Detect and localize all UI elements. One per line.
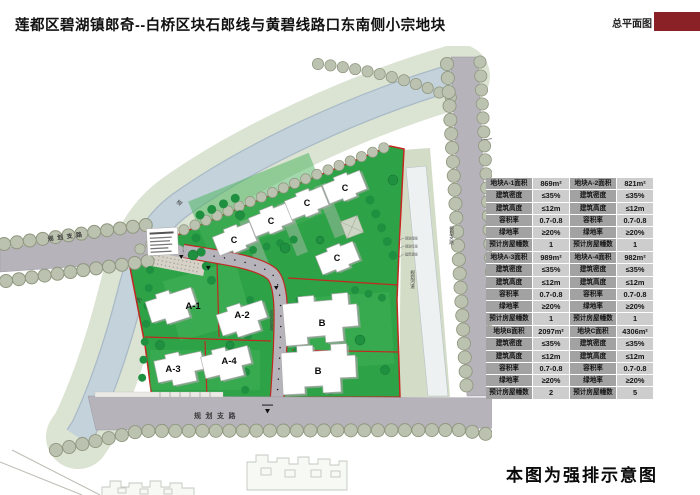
spec-row-label: 预计房屋幢数 [486,239,532,250]
spec-value: 5 [617,387,653,398]
setback-note-3: 建筑退线 [405,252,419,257]
spec-value: 1 [533,239,569,250]
spec-value: 0.7-0.8 [533,215,569,226]
site-plan-map: A-1 A-2 A-3 A-4 B B C C C C C 规划支路 规划支路 … [0,46,492,495]
spec-title: 地块A-2面积 [570,178,616,189]
page-title: 莲都区碧湖镇郎奇--白桥区块石郎线与黄碧线路口东南侧小宗地块 [15,14,446,35]
spec-row-label: 容积率 [570,289,616,300]
spec-value: ≥20% [617,375,653,386]
footprint-sketch-1 [102,481,194,495]
spec-row-label: 建筑密度 [486,338,532,349]
parcel-label-a4: A-4 [221,356,237,367]
spec-area: 989m² [533,252,569,263]
spec-value: ≤35% [533,338,569,349]
footprint-sketch-2 [247,455,347,490]
spec-row-label: 容积率 [486,363,532,374]
spec-title: 地块C面积 [570,326,616,337]
spec-value: ≤35% [617,264,653,275]
spec-value: ≤35% [617,338,653,349]
spec-row-label: 建筑高度 [486,351,532,362]
spec-row-label: 建筑高度 [486,277,532,288]
spec-value: 0.7-0.8 [533,363,569,374]
spec-row-label: 容积率 [570,363,616,374]
spec-row-label: 建筑密度 [570,338,616,349]
spec-value: ≤12m [617,203,653,214]
spec-title: 地块A-4面积 [570,252,616,263]
sidewalk [95,392,223,397]
spec-row-label: 容积率 [570,215,616,226]
parcel-label-c5: C [334,253,341,263]
parcel-label-c1: C [231,235,238,245]
spec-row-label: 建筑高度 [570,277,616,288]
spec-table-a1: 地块A-1面积 869m² 建筑密度 ≤35% 建筑高度 ≤12m 容积率 0.… [486,178,569,251]
sheet-type-label: 总平面图 [598,15,652,30]
parcel-label-b2: B [315,366,322,377]
spec-table-c: 地块C面积 4306m² 建筑密度 ≤35% 建筑高度 ≤12m 容积率 0.7… [570,326,653,399]
parcel-label-a3: A-3 [165,364,180,375]
spec-row-label: 容积率 [486,215,532,226]
spec-value: ≤12m [533,351,569,362]
spec-row-label: 绿地率 [486,227,532,238]
east-road-label: 规划支路 [449,225,455,246]
spec-row-label: 建筑高度 [486,203,532,214]
spec-row-label: 绿地率 [570,227,616,238]
spec-row-label: 绿地率 [486,375,532,386]
spec-table-a2: 地块A-2面积 821m² 建筑密度 ≤35% 建筑高度 ≤12m 容积率 0.… [570,178,653,251]
spec-value: 0.7-0.8 [533,289,569,300]
internal-road-label: 宅间内部道路 [269,309,273,331]
spec-value: ≤35% [617,190,653,201]
spec-value: ≥20% [533,301,569,312]
spec-area: 869m² [533,178,569,189]
spec-value: ≤12m [533,277,569,288]
spec-value: ≤12m [617,351,653,362]
spec-value: ≥20% [533,375,569,386]
bridge-note [146,227,178,256]
spec-table-a4: 地块A-4面积 982m² 建筑密度 ≤35% 建筑高度 ≤12m 容积率 0.… [570,252,653,325]
spec-value: 1 [617,239,653,250]
bottom-note: 本图为强排示意图 [506,461,658,486]
spec-table-b: 地块B面积 2097m² 建筑密度 ≤35% 建筑高度 ≤12m 容积率 0.7… [486,326,569,399]
spec-row-label: 预计房屋幢数 [570,239,616,250]
spec-row-label: 建筑高度 [570,351,616,362]
spec-title: 地块A-3面积 [486,252,532,263]
setback-note-1: 规划绿线 [405,236,419,241]
spec-area: 2097m² [533,326,569,337]
spec-value: 0.7-0.8 [617,289,653,300]
spec-title: 地块A-1面积 [486,178,532,189]
spec-value: 0.7-0.8 [617,363,653,374]
spec-value: ≥20% [617,301,653,312]
spec-value: 1 [533,313,569,324]
spec-row-label: 建筑密度 [570,190,616,201]
spec-row-label: 建筑密度 [486,190,532,201]
channel-label: 规划河道 [410,269,416,290]
parcel-label-c2: C [268,216,275,226]
spec-row-label: 绿地率 [570,301,616,312]
spec-row-label: 容积率 [486,289,532,300]
spec-row-label: 建筑密度 [486,264,532,275]
spec-value: ≤35% [533,264,569,275]
spec-table-a3: 地块A-3面积 989m² 建筑密度 ≤35% 建筑高度 ≤12m 容积率 0.… [486,252,569,325]
spec-area: 982m² [617,252,653,263]
south-road-label: 规划支路 [194,411,240,420]
accent-bar [654,12,700,31]
spec-value: ≤12m [533,203,569,214]
spec-value: ≥20% [533,227,569,238]
parcel-label-c3: C [304,198,311,208]
spec-area: 821m² [617,178,653,189]
parcel-label-c4: C [342,183,349,193]
spec-value: ≤35% [533,190,569,201]
spec-row-label: 预计房屋幢数 [570,387,616,398]
spec-row-label: 绿地率 [486,301,532,312]
spec-row-label: 建筑密度 [570,264,616,275]
spec-value: 1 [617,313,653,324]
setback-note-texts: 规划绿线 规划红线 建筑退线 [405,236,419,257]
spec-row-label: 建筑高度 [570,203,616,214]
spec-title: 地块B面积 [486,326,532,337]
setback-note-2: 规划红线 [405,244,419,249]
spec-area: 4306m² [617,326,653,337]
spec-row-label: 预计房屋幢数 [486,387,532,398]
spec-row-label: 预计房屋幢数 [486,313,532,324]
spec-value: ≥20% [617,227,653,238]
plan-sheet: 莲都区碧湖镇郎奇--白桥区块石郎线与黄碧线路口东南侧小宗地块 总平面图 [0,0,700,495]
spec-value: ≤12m [617,277,653,288]
parcel-label-a1: A-1 [185,301,201,312]
spec-value: 2 [533,387,569,398]
parcel-label-b1: B [319,318,326,329]
spec-row-label: 绿地率 [570,375,616,386]
spec-value: 0.7-0.8 [617,215,653,226]
spec-row-label: 预计房屋幢数 [570,313,616,324]
parcel-label-a2: A-2 [234,310,249,321]
